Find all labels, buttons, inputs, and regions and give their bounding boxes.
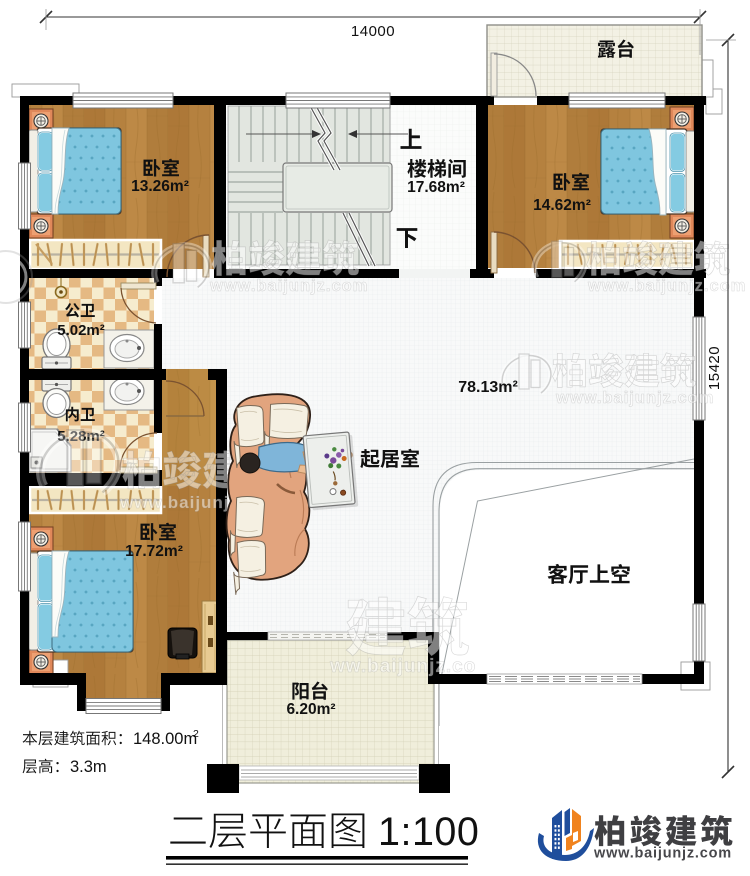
- svg-text:2: 2: [193, 728, 199, 740]
- svg-text:1:100: 1:100: [378, 810, 479, 854]
- svg-text:5.02m²: 5.02m²: [57, 322, 105, 339]
- svg-text:3.3m: 3.3m: [70, 758, 107, 776]
- svg-text:14.62m²: 14.62m²: [533, 197, 591, 214]
- svg-text:ww.baijunjz.co: ww.baijunjz.co: [329, 656, 476, 677]
- svg-text:6.20m²: 6.20m²: [286, 701, 335, 718]
- svg-text:www.baijunjz.com: www.baijunjz.com: [587, 277, 746, 295]
- svg-text:14000: 14000: [351, 23, 395, 40]
- svg-text:17.68m²: 17.68m²: [407, 179, 465, 196]
- svg-text:www.baijunjz.com: www.baijunjz.com: [593, 846, 732, 862]
- svg-text:www.baijunjz.com: www.baijunjz.com: [209, 277, 368, 295]
- svg-text:13.26m²: 13.26m²: [131, 178, 189, 195]
- svg-text:15420: 15420: [706, 346, 723, 390]
- svg-text:148.00m: 148.00m: [133, 730, 197, 748]
- svg-text:17.72m²: 17.72m²: [125, 543, 183, 560]
- svg-text:78.13m²: 78.13m²: [458, 379, 518, 396]
- svg-text:www.baijunjz.com: www.baijunjz.com: [555, 389, 714, 407]
